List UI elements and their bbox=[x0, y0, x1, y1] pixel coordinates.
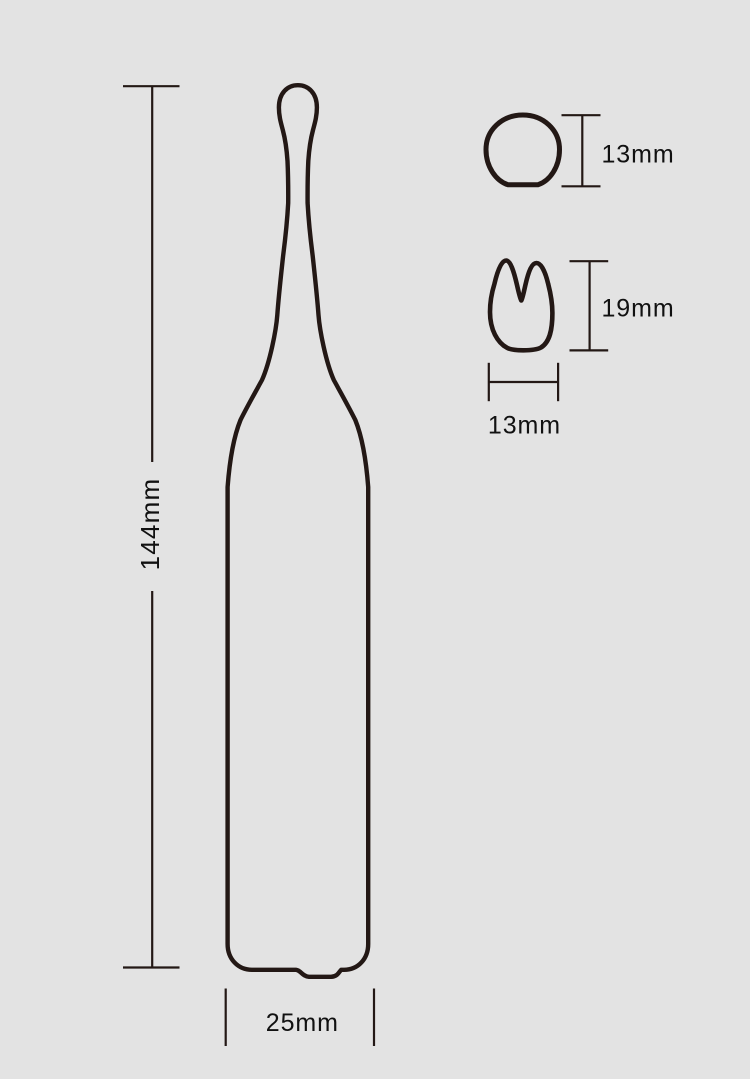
svg-text:13mm: 13mm bbox=[602, 141, 675, 169]
svg-text:13mm: 13mm bbox=[488, 412, 561, 440]
svg-text:25mm: 25mm bbox=[266, 1009, 339, 1037]
svg-text:144mm: 144mm bbox=[135, 478, 165, 571]
svg-text:19mm: 19mm bbox=[602, 295, 675, 323]
